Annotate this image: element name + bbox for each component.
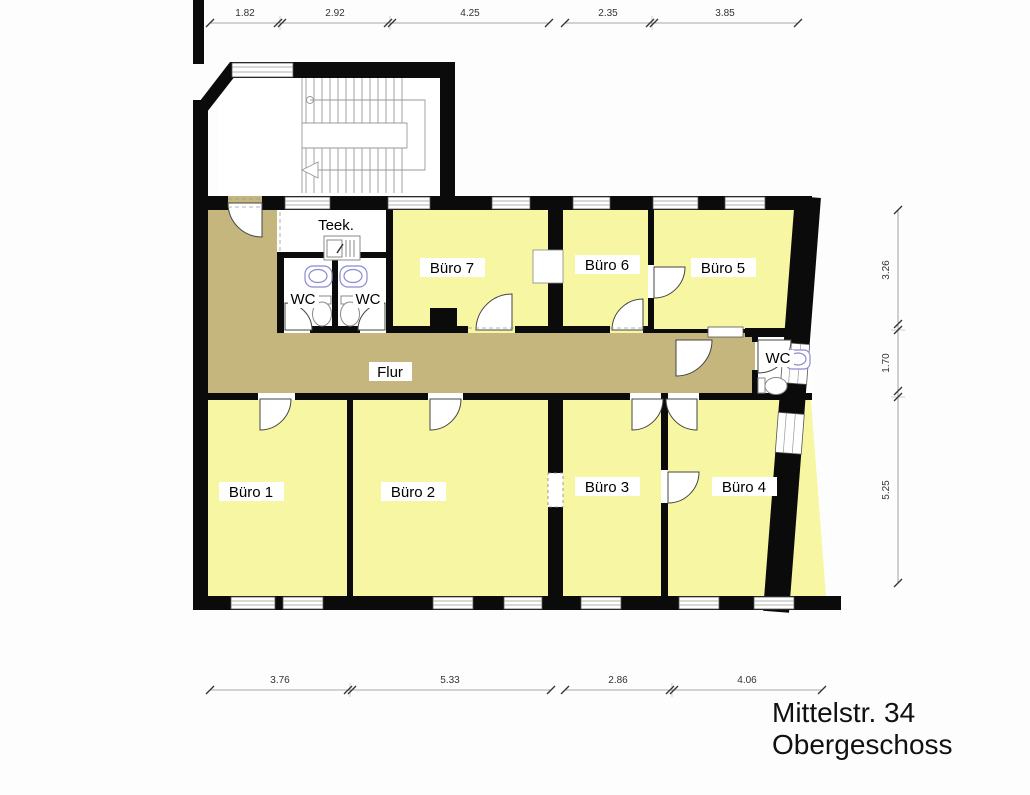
dim-right-3: 5.25 <box>881 480 892 500</box>
dim-top-2: 2.92 <box>325 8 345 19</box>
dim-bottom-3: 2.86 <box>608 675 628 686</box>
dimension-right: 3.26 1.70 5.25 <box>881 206 905 587</box>
floor-plan-drawing: Teek. WC WC Büro 7 Büro 6 Büro 5 Flur WC… <box>0 0 1030 795</box>
wc-right-sink <box>340 266 367 287</box>
wall-west <box>193 196 208 610</box>
wall-stairwell-right <box>440 62 455 202</box>
wc-corridor-toilet <box>758 378 787 395</box>
dimension-top: 1.82 2.92 4.25 2.35 3.85 <box>206 8 802 30</box>
party-wall-upper <box>193 0 204 64</box>
plan-title-address: Mittelstr. 34 <box>772 697 915 728</box>
label-teekueche: Teek. <box>318 217 354 234</box>
dim-top-1: 1.82 <box>235 8 255 19</box>
room-buero-3 <box>563 400 661 596</box>
floor-plan-page: Teek. WC WC Büro 7 Büro 6 Büro 5 Flur WC… <box>0 0 1030 795</box>
label-wc-small-right: WC <box>356 291 381 308</box>
dim-top-3: 4.25 <box>460 8 480 19</box>
dim-top-5: 3.85 <box>715 8 735 19</box>
dim-bottom-1: 3.76 <box>270 675 290 686</box>
label-wc-corridor: WC <box>766 350 791 367</box>
label-flur: Flur <box>377 364 403 381</box>
dim-bottom-4: 4.06 <box>737 675 757 686</box>
label-buero-2: Büro 2 <box>391 484 435 501</box>
label-buero-3: Büro 3 <box>585 479 629 496</box>
kitchen-sink <box>324 236 360 260</box>
chimney-buero-7 <box>430 308 457 326</box>
label-buero-6: Büro 6 <box>585 257 629 274</box>
dimension-bottom: 3.76 5.33 2.86 4.06 <box>206 675 826 697</box>
divider-buero-1-2 <box>347 400 353 596</box>
dim-bottom-2: 5.33 <box>440 675 460 686</box>
plan-title-floor: Obergeschoss <box>772 729 953 760</box>
label-buero-5: Büro 5 <box>701 260 745 277</box>
wall-niche-buero-3 <box>548 473 563 507</box>
room-flur-strip <box>208 333 755 393</box>
dim-right-2: 1.70 <box>881 353 892 373</box>
title-block: Mittelstr. 34 Obergeschoss <box>772 697 953 760</box>
dim-right-1: 3.26 <box>881 260 892 280</box>
label-wc-small-left: WC <box>291 291 316 308</box>
wall-niche-buero-7 <box>533 250 563 283</box>
wc-left-sink <box>305 266 332 287</box>
label-buero-7: Büro 7 <box>430 260 474 277</box>
dim-top-4: 2.35 <box>598 8 618 19</box>
label-buero-4: Büro 4 <box>722 479 766 496</box>
label-buero-1: Büro 1 <box>229 484 273 501</box>
